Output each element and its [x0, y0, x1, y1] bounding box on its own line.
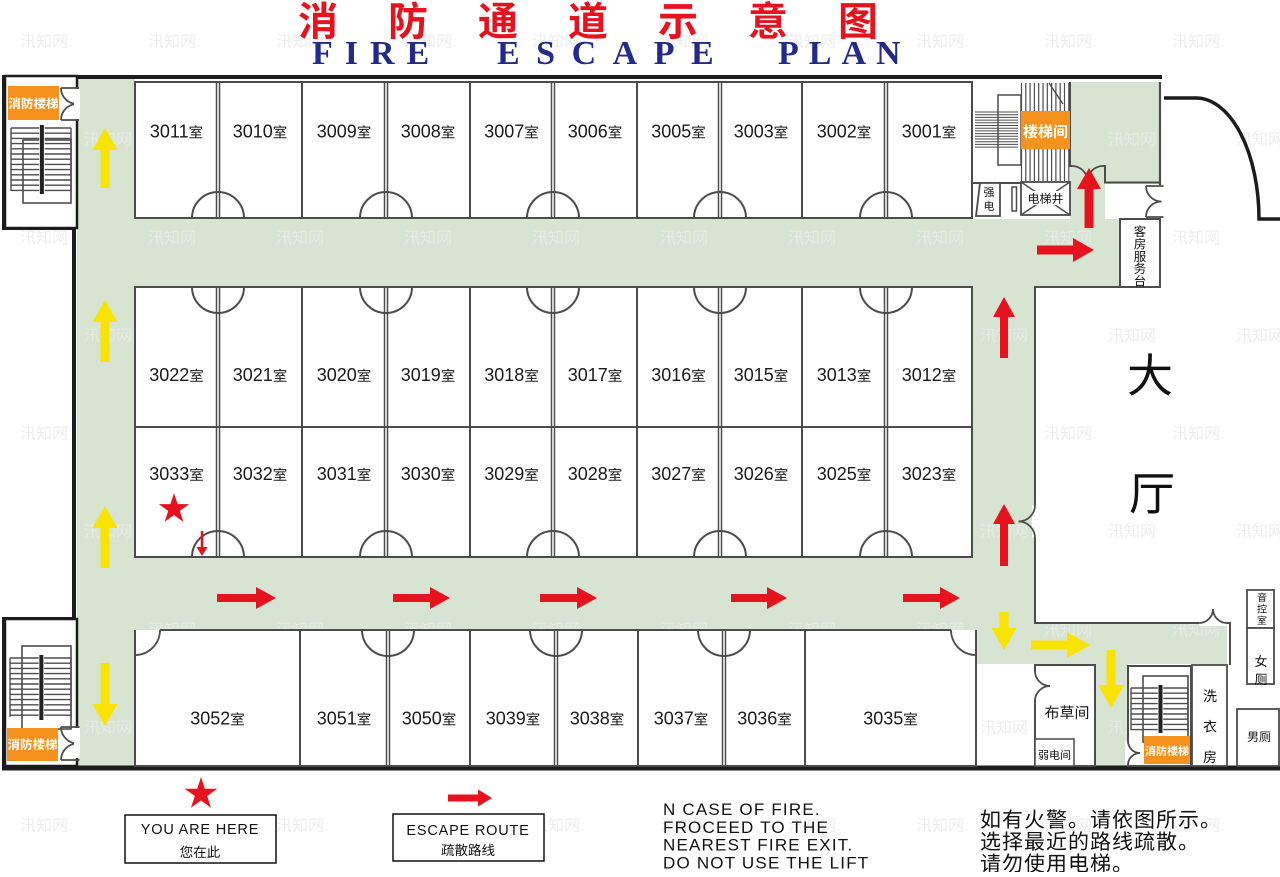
svg-text:N CASE OF FIRE.: N CASE OF FIRE.	[663, 800, 821, 819]
svg-text:衣: 衣	[1203, 717, 1217, 737]
svg-text:汛知网: 汛知网	[660, 224, 708, 248]
svg-text:汛知网: 汛知网	[1108, 126, 1156, 150]
svg-text:消防楼梯: 消防楼梯	[7, 734, 57, 753]
svg-text:布草间: 布草间	[1044, 702, 1089, 723]
svg-text:汛知网: 汛知网	[980, 714, 1028, 738]
svg-text:汛知网: 汛知网	[20, 28, 68, 52]
svg-text:汛知网: 汛知网	[148, 28, 196, 52]
svg-text:NEAREST FIRE EXIT.: NEAREST FIRE EXIT.	[663, 836, 853, 855]
svg-text:台: 台	[1134, 271, 1147, 290]
svg-text:汛知网: 汛知网	[916, 224, 964, 248]
svg-text:大: 大	[1127, 340, 1173, 406]
svg-text:汛知网: 汛知网	[1172, 224, 1220, 248]
svg-text:汛知网: 汛知网	[404, 224, 452, 248]
svg-text:厕: 厕	[1254, 669, 1267, 688]
svg-text:弱电间: 弱电间	[1038, 747, 1071, 763]
svg-text:汛知网: 汛知网	[532, 224, 580, 248]
svg-text:汛知网: 汛知网	[1044, 28, 1092, 52]
svg-text:汛知网: 汛知网	[1236, 322, 1280, 346]
svg-text:汛知网: 汛知网	[1044, 420, 1092, 444]
svg-text:ESCAPE ROUTE: ESCAPE ROUTE	[406, 823, 529, 839]
svg-text:汛知网: 汛知网	[276, 812, 324, 836]
svg-text:PLAN: PLAN	[778, 35, 911, 72]
svg-text:汛知网: 汛知网	[916, 812, 964, 836]
svg-text:请勿使用电梯。: 请勿使用电梯。	[980, 848, 1134, 872]
svg-text:汛知网: 汛知网	[788, 224, 836, 248]
svg-text:楼梯间: 楼梯间	[1023, 121, 1068, 142]
svg-text:DO NOT USE THE LIFT: DO NOT USE THE LIFT	[663, 853, 869, 872]
svg-text:消防楼梯: 消防楼梯	[8, 93, 58, 112]
svg-text:厅: 厅	[1129, 458, 1175, 524]
svg-text:汛知网: 汛知网	[1172, 616, 1220, 640]
svg-text:电: 电	[984, 198, 995, 214]
svg-text:消防楼梯: 消防楼梯	[1145, 743, 1189, 759]
svg-text:室: 室	[1257, 612, 1267, 627]
svg-text:女: 女	[1254, 651, 1267, 670]
svg-text:男厕: 男厕	[1247, 728, 1271, 745]
svg-text:您在此: 您在此	[180, 841, 221, 861]
svg-text:电梯井: 电梯井	[1027, 190, 1063, 207]
svg-text:汛知网: 汛知网	[148, 224, 196, 248]
svg-text:汛知网: 汛知网	[1172, 28, 1220, 52]
svg-text:疏散路线: 疏散路线	[441, 839, 495, 859]
svg-text:FIRE: FIRE	[312, 35, 441, 72]
svg-text:YOU ARE HERE: YOU ARE HERE	[141, 822, 259, 838]
svg-text:汛知网: 汛知网	[1172, 420, 1220, 444]
svg-text:汛知网: 汛知网	[20, 812, 68, 836]
svg-text:汛知网: 汛知网	[276, 224, 324, 248]
svg-text:FROCEED TO THE: FROCEED TO THE	[663, 818, 829, 837]
svg-text:ESCAPE: ESCAPE	[497, 35, 730, 72]
svg-text:汛知网: 汛知网	[20, 420, 68, 444]
svg-text:房: 房	[1203, 747, 1217, 767]
svg-text:汛知网: 汛知网	[1236, 518, 1280, 542]
svg-text:洗: 洗	[1203, 686, 1217, 706]
